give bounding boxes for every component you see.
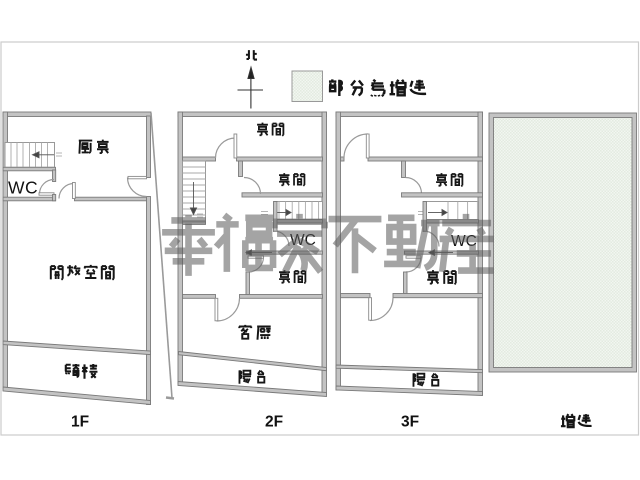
svg-text:2F: 2F: [265, 414, 283, 431]
svg-text:1F: 1F: [71, 414, 89, 431]
svg-text:3F: 3F: [401, 414, 419, 431]
svg-text:WC: WC: [8, 178, 38, 198]
